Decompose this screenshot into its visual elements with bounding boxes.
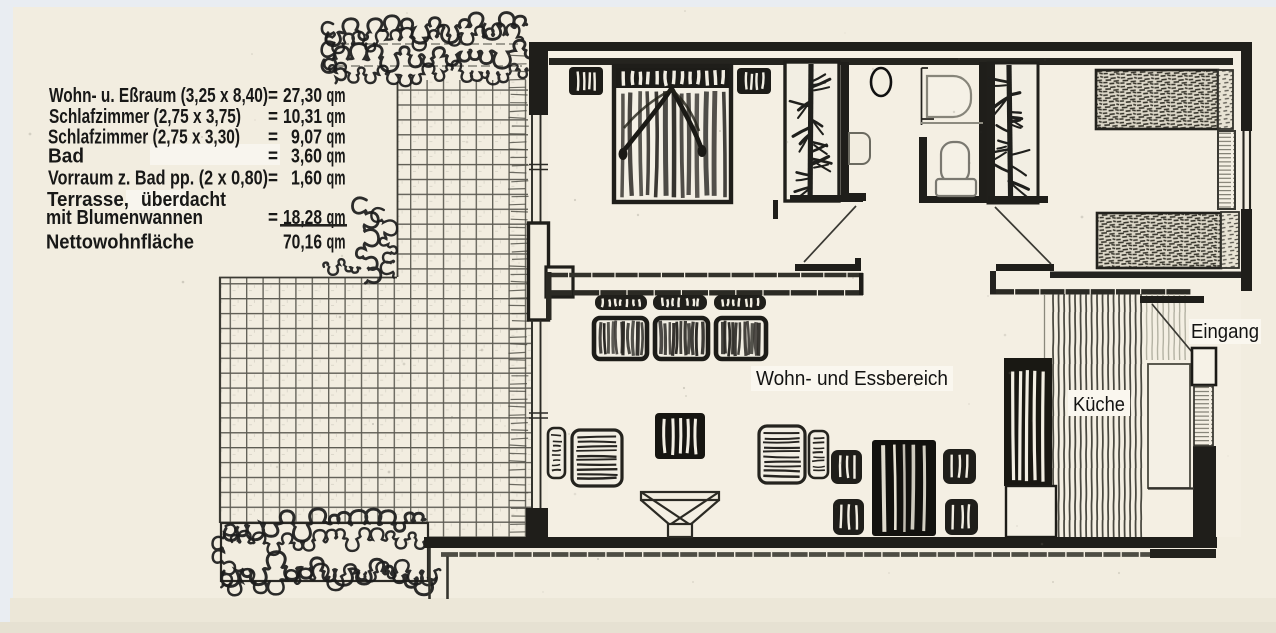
svg-text:Wohn- und Essbereich: Wohn- und Essbereich [756,367,948,390]
svg-text:=: = [268,207,278,229]
svg-text:Vorraum z. Bad pp. (2 x 0,80): Vorraum z. Bad pp. (2 x 0,80) [48,168,268,190]
svg-text:=: = [268,106,278,128]
svg-text:1,60: 1,60 [291,168,322,190]
svg-text:=: = [268,85,278,107]
svg-text:Nettowohnfläche: Nettowohnfläche [46,232,194,254]
svg-text:qm: qm [327,168,346,190]
svg-text:=: = [268,146,278,168]
svg-text:qm: qm [327,232,346,254]
svg-text:Eingang: Eingang [1191,320,1259,343]
svg-text:10,31: 10,31 [283,106,322,128]
svg-text:Bad: Bad [48,146,84,168]
svg-text:qm: qm [327,146,346,168]
svg-text:70,16: 70,16 [283,232,322,254]
svg-text:=: = [268,168,278,190]
svg-text:Schlafzimmer (2,75 x 3,75): Schlafzimmer (2,75 x 3,75) [49,106,241,128]
svg-text:Küche: Küche [1073,393,1125,416]
svg-text:Wohn- u. Eßraum (3,25 x 8,40): Wohn- u. Eßraum (3,25 x 8,40) [49,85,268,107]
svg-text:27,30: 27,30 [283,85,322,107]
svg-text:qm: qm [327,85,346,107]
svg-text:mit Blumenwannen: mit Blumenwannen [46,207,203,229]
svg-text:qm: qm [327,106,346,128]
svg-text:3,60: 3,60 [291,146,322,168]
